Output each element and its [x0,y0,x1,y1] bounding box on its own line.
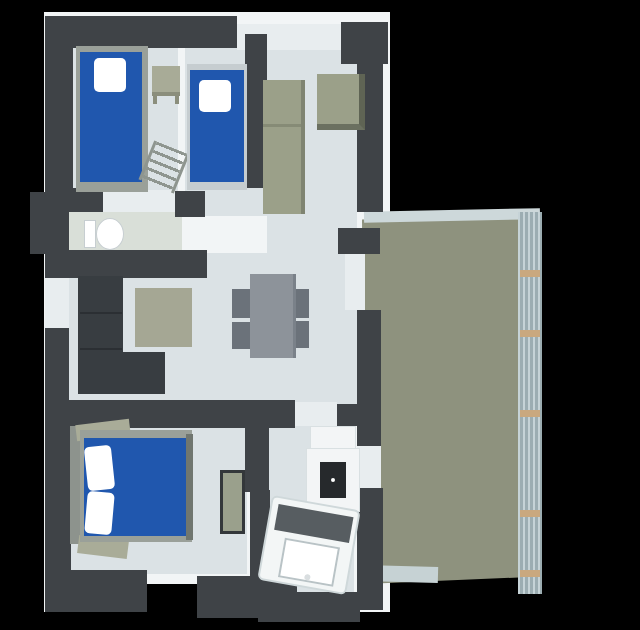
toilet-tank [84,220,96,248]
wall-top [45,16,237,48]
terrace-door-opening [345,254,365,310]
dining-chair [296,289,309,318]
railing-post [520,410,540,417]
pillow-bed-1 [94,58,126,92]
dining-chair [232,322,250,349]
window-left [45,278,69,328]
sofa-seam [80,312,122,314]
wall-left-upper [45,16,73,206]
wall-right-2 [338,228,380,254]
bench-cabinet [220,470,245,534]
dining-table [250,274,296,358]
pillow-double-1 [84,445,115,492]
railing-post [520,510,540,517]
pillow-bed-2 [199,80,231,112]
rug [135,288,192,347]
cooktop [320,462,346,498]
sofa-vertical-arm [78,276,123,394]
door-living-kitchen [295,402,337,426]
wall-bottom-right [258,592,360,622]
wall-right-lower [357,488,383,610]
wall-bathroom-door [103,190,175,212]
wall-bathroom-bottom [55,250,207,278]
bathtub [257,495,361,595]
nightstand [152,66,180,96]
toilet-bowl [96,218,124,250]
dining-chair [232,289,250,318]
wall-left-mid [45,206,69,278]
nightstand-leg [175,96,179,104]
kitchen-counter-upper [310,426,356,450]
bed-footboard [186,434,193,540]
wall-right-mid [357,310,381,428]
sofa-seam [80,348,122,350]
entry-door-gap [147,584,197,612]
wardrobe [263,80,305,214]
dining-chair [296,321,309,348]
wall-hall-stub [175,191,205,217]
pillow-double-2 [84,491,115,535]
railing-post [520,270,540,277]
nightstand-leg [153,96,157,104]
wall-right-kitchen [357,424,381,446]
wall-right-kitchen-lit [357,446,381,488]
cooktop-knob [331,478,335,482]
sofa-horizontal-arm [121,352,165,394]
railing-post [520,330,540,337]
floor-plan-render [0,0,640,630]
wardrobe-split [263,124,301,127]
wall-kitchen-divider [245,414,269,492]
railing-post [520,570,540,577]
cabinet-box [317,74,365,130]
terrace-deck [362,212,540,584]
wall-left-lower [45,424,71,576]
wall-bottom-left [45,570,147,612]
